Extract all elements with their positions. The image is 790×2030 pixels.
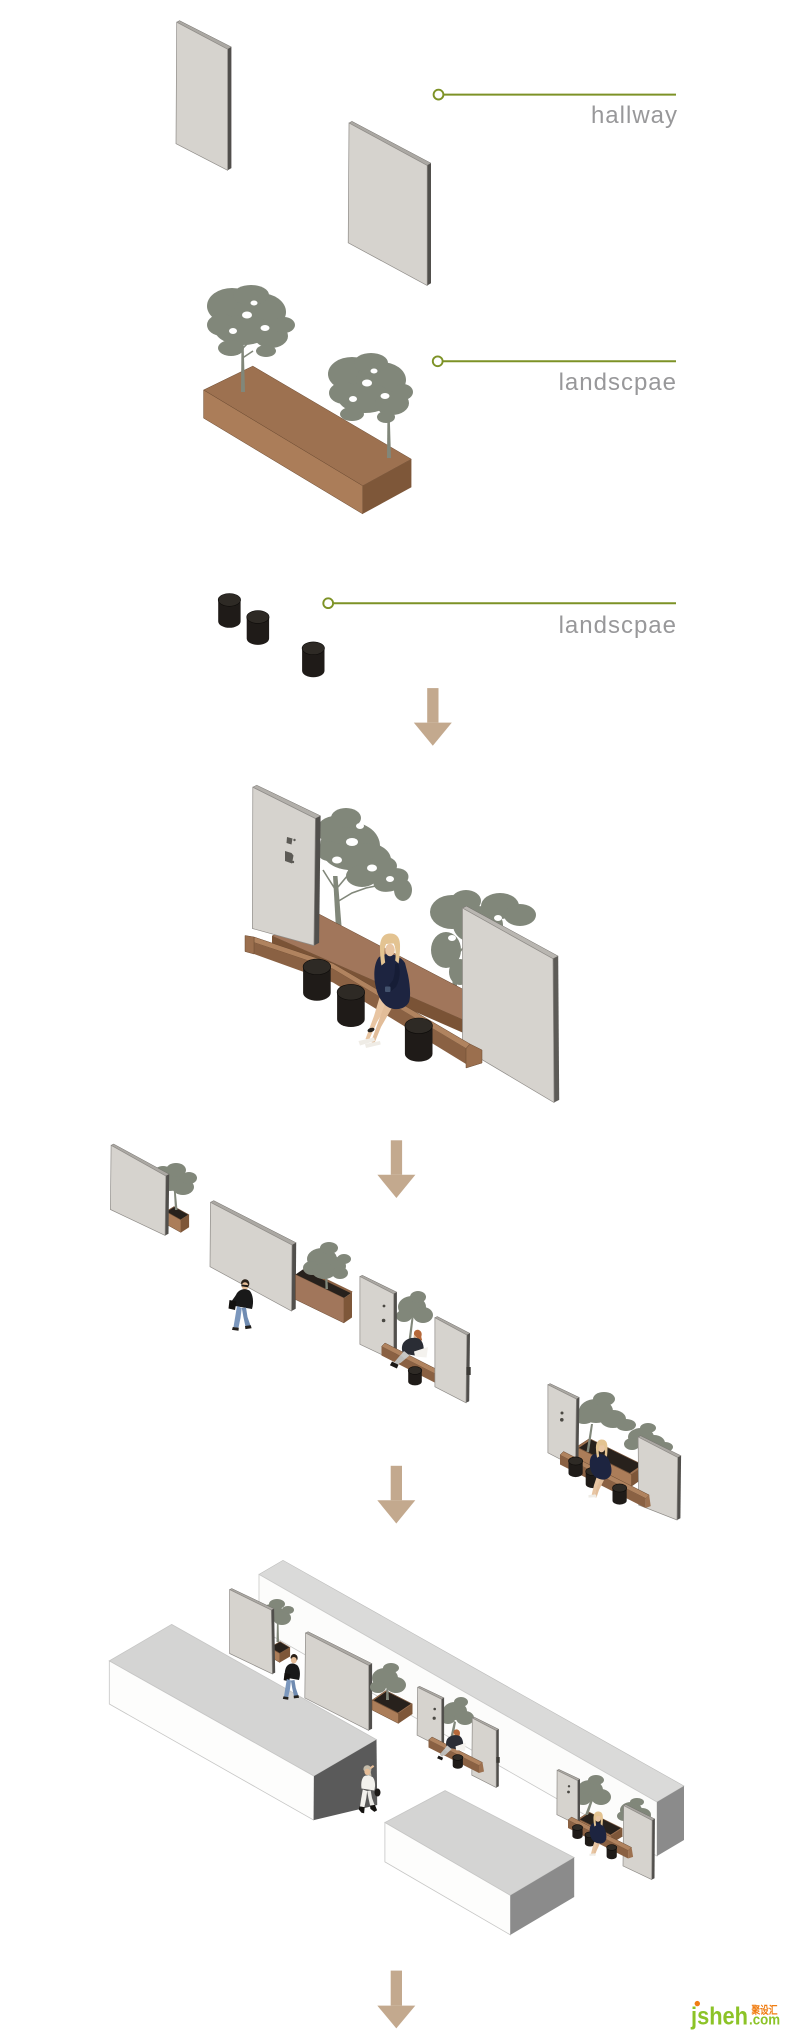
svg-text:landscpae: landscpae (559, 612, 677, 639)
svg-text:landscpae: landscpae (559, 369, 677, 396)
svg-text:聚设汇: 聚设汇 (751, 2004, 778, 2017)
svg-text:hallway: hallway (591, 102, 678, 129)
svg-text:jsheh: jsheh (690, 2003, 748, 2030)
